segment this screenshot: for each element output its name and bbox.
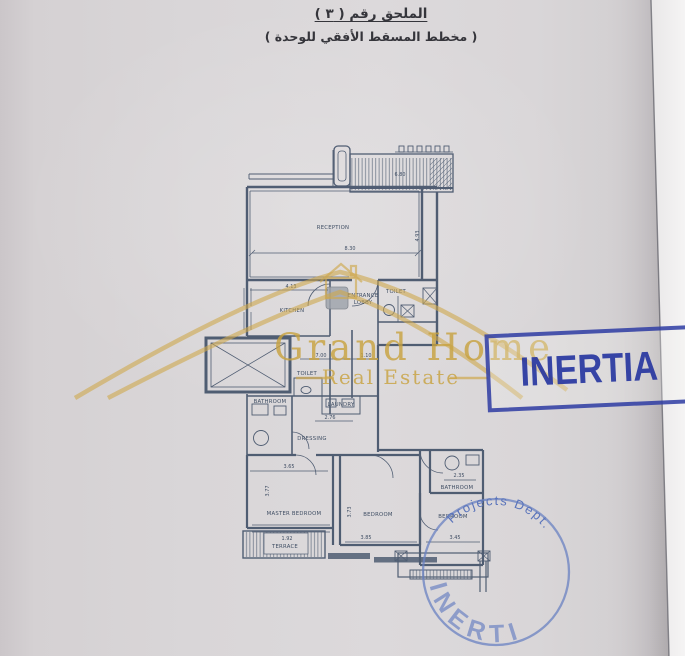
round-stamp-top-text: Projects Dept. <box>444 493 555 532</box>
scanned-document-page: الملحق رقم ( ٣ ) ( مخطط المسقط الأفقي لل… <box>0 0 685 656</box>
round-stamp-bottom-textpath: INERTIA <box>0 0 527 648</box>
title-appendix-line: الملحق رقم ( ٣ ) <box>240 6 502 22</box>
projects-dept-round-stamp: Projects Dept. INERTIA <box>0 0 685 656</box>
document-title-block: الملحق رقم ( ٣ ) ( مخطط المسقط الأفقي لل… <box>240 6 502 44</box>
round-stamp-bottom-text: INERTIA <box>0 0 527 648</box>
round-stamp-top-textpath: Projects Dept. <box>444 493 555 532</box>
title-plan-line: ( مخطط المسقط الأفقي للوحدة ) <box>240 29 502 44</box>
